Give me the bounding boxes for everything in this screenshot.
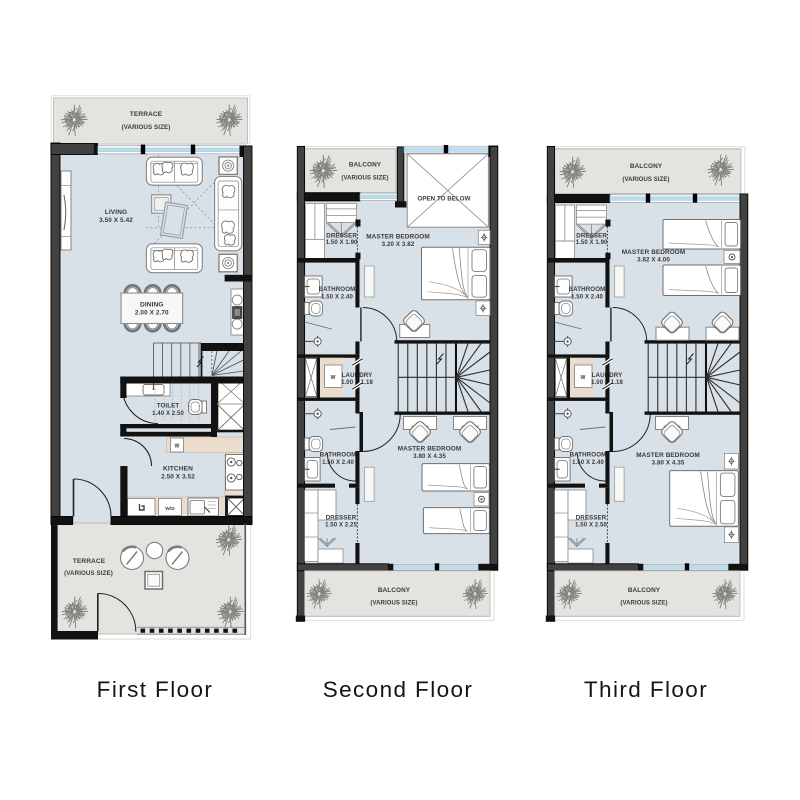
- svg-text:2.00 X 2.70: 2.00 X 2.70: [135, 310, 169, 317]
- svg-text:BALCONY: BALCONY: [630, 163, 663, 170]
- svg-text:(VARIOUS SIZE): (VARIOUS SIZE): [370, 601, 417, 607]
- svg-text:KITCHEN: KITCHEN: [163, 466, 193, 473]
- svg-text:3.80 X 4.35: 3.80 X 4.35: [652, 459, 685, 466]
- svg-text:1.50 X 2.40: 1.50 X 2.40: [572, 460, 604, 466]
- svg-text:Second Floor: Second Floor: [323, 677, 474, 702]
- svg-text:3.50 X 5.42: 3.50 X 5.42: [99, 217, 133, 224]
- svg-text:BATHROOM: BATHROOM: [570, 452, 607, 459]
- svg-text:(VARIOUS SIZE): (VARIOUS SIZE): [341, 176, 388, 182]
- svg-text:TERRACE: TERRACE: [73, 558, 106, 565]
- svg-text:(VARIOUS SIZE): (VARIOUS SIZE): [64, 570, 113, 577]
- svg-text:1.50 X 2.50: 1.50 X 2.50: [575, 523, 607, 529]
- svg-text:W: W: [581, 375, 586, 381]
- svg-text:OPEN TO BELOW: OPEN TO BELOW: [418, 196, 471, 203]
- svg-text:DRESSER: DRESSER: [326, 515, 357, 522]
- svg-text:TOILET: TOILET: [157, 403, 180, 410]
- svg-text:Third Floor: Third Floor: [584, 677, 708, 702]
- svg-text:3.80 X 4.35: 3.80 X 4.35: [413, 453, 446, 460]
- svg-text:MASTER BEDROOM: MASTER BEDROOM: [366, 233, 430, 240]
- svg-text:W/D: W/D: [165, 506, 175, 512]
- svg-text:DRESSER: DRESSER: [576, 233, 607, 240]
- svg-text:BALCONY: BALCONY: [349, 162, 382, 169]
- svg-text:1.50 X 2.25: 1.50 X 2.25: [325, 523, 357, 529]
- svg-text:TERRACE: TERRACE: [130, 111, 163, 118]
- svg-text:3.82 X 4.00: 3.82 X 4.00: [637, 257, 670, 264]
- svg-text:W: W: [331, 375, 336, 381]
- svg-text:DRESSER: DRESSER: [576, 515, 607, 522]
- svg-text:BATHROOM: BATHROOM: [569, 286, 606, 293]
- svg-text:1.50 X 2.40: 1.50 X 2.40: [322, 460, 354, 466]
- svg-text:2.50 X 3.52: 2.50 X 3.52: [161, 474, 195, 481]
- svg-text:LIVING: LIVING: [105, 209, 128, 216]
- svg-text:DINING: DINING: [140, 302, 164, 309]
- svg-text:1.50 X 2.40: 1.50 X 2.40: [571, 294, 603, 300]
- svg-text:1.50 X 1.90: 1.50 X 1.90: [576, 240, 608, 246]
- svg-text:(VARIOUS SIZE): (VARIOUS SIZE): [622, 177, 669, 183]
- svg-text:(VARIOUS SIZE): (VARIOUS SIZE): [620, 601, 667, 607]
- svg-text:(VARIOUS SIZE): (VARIOUS SIZE): [122, 124, 171, 131]
- svg-text:1.50 X 2.40: 1.50 X 2.40: [321, 294, 353, 300]
- svg-text:MASTER BEDROOM: MASTER BEDROOM: [636, 452, 700, 459]
- svg-text:1.40 X 2.50: 1.40 X 2.50: [152, 411, 184, 417]
- svg-text:W: W: [175, 444, 180, 450]
- svg-text:DRESSER: DRESSER: [326, 233, 357, 240]
- svg-text:1.50 X 1.90: 1.50 X 1.90: [326, 240, 358, 246]
- svg-text:BALCONY: BALCONY: [378, 587, 411, 594]
- svg-text:First Floor: First Floor: [97, 677, 214, 702]
- svg-text:MASTER BEDROOM: MASTER BEDROOM: [398, 446, 462, 453]
- svg-text:BATHROOM: BATHROOM: [320, 452, 357, 459]
- svg-text:BALCONY: BALCONY: [628, 587, 661, 594]
- svg-text:3.20 X 3.82: 3.20 X 3.82: [382, 241, 415, 248]
- svg-text:MASTER BEDROOM: MASTER BEDROOM: [622, 249, 686, 256]
- svg-text:BATHROOM: BATHROOM: [319, 286, 356, 293]
